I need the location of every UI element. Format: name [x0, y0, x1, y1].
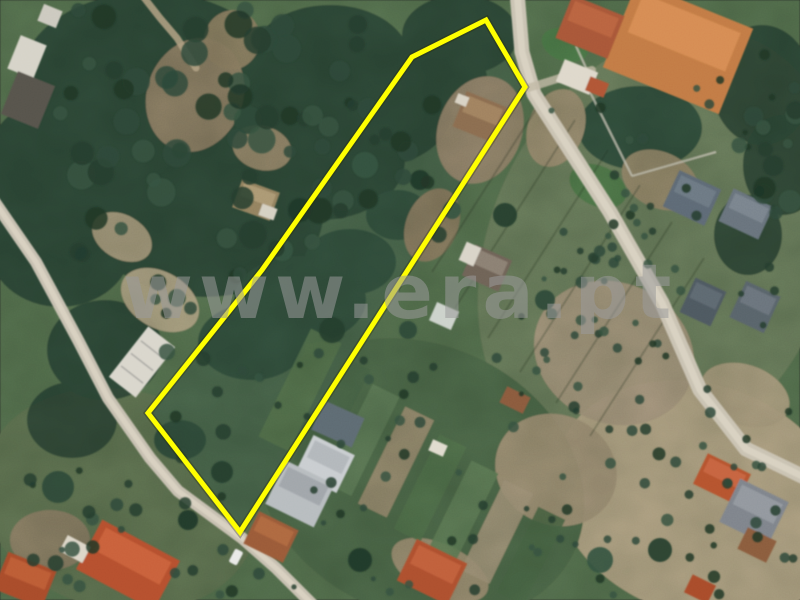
- aerial-satellite-view: www.era.pt: [0, 0, 800, 600]
- watermark-text: www.era.pt: [123, 247, 678, 336]
- satellite-listing-photo: www.era.pt: [0, 0, 800, 600]
